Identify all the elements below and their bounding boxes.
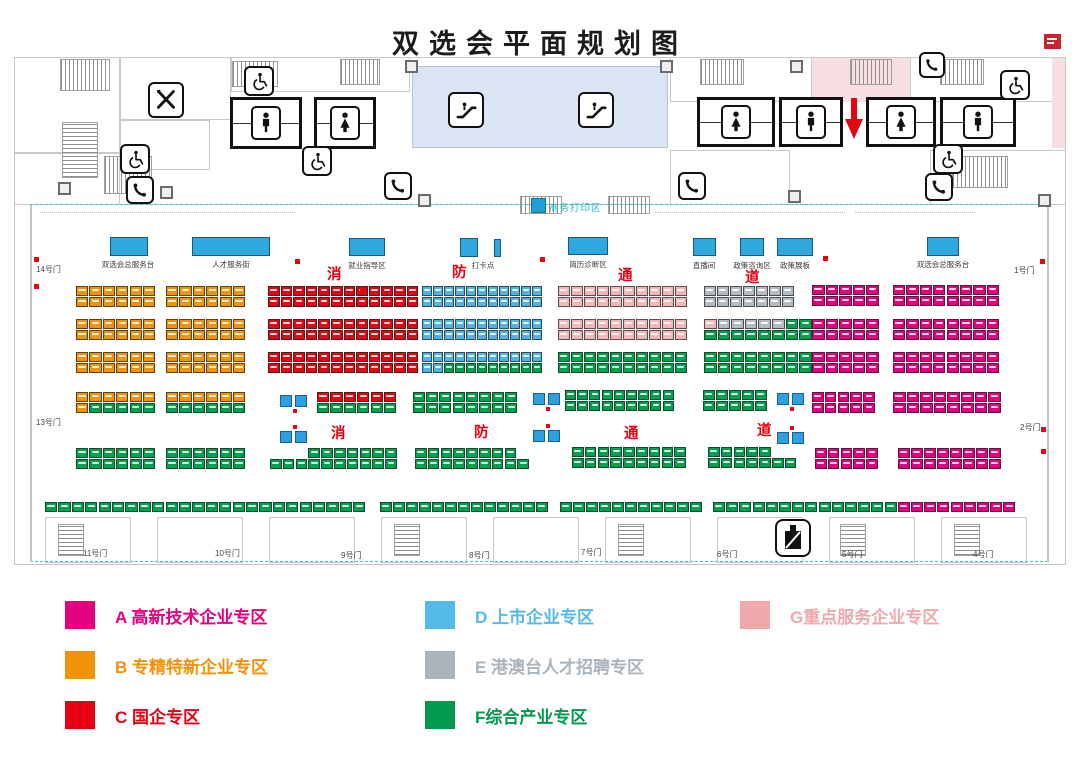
booth-cell-F bbox=[139, 502, 151, 512]
booth-cell-F bbox=[179, 502, 191, 512]
booth-cell-A bbox=[893, 363, 905, 373]
booth-cell-G bbox=[649, 286, 661, 296]
booth-cell-F bbox=[623, 447, 635, 457]
booth-cell-F bbox=[85, 502, 97, 512]
booth-cell-A bbox=[839, 363, 852, 373]
booth-cell-F bbox=[758, 363, 771, 373]
booth-cell-A bbox=[934, 392, 947, 402]
booth-cell-F bbox=[885, 502, 897, 512]
booth-cell-B bbox=[220, 330, 232, 340]
booth-cell-F bbox=[523, 502, 535, 512]
booth-cell-C bbox=[281, 297, 293, 307]
pillar bbox=[418, 194, 431, 207]
restroom-male bbox=[940, 97, 1016, 147]
booth-strip-F bbox=[565, 390, 675, 412]
booth-cell-F bbox=[745, 363, 758, 373]
gate-label: 4号门 bbox=[973, 549, 993, 560]
booth-cell-F bbox=[602, 390, 613, 400]
booth-cell-F bbox=[384, 403, 396, 413]
booth-cell-F bbox=[103, 459, 115, 469]
booth-strip-F bbox=[166, 448, 246, 470]
booth-cell-F bbox=[193, 403, 205, 413]
booth-cell-A bbox=[866, 352, 879, 362]
red-marker bbox=[790, 407, 794, 411]
booth-cell-F bbox=[499, 363, 509, 373]
booth-cell-A bbox=[850, 403, 862, 413]
red-marker bbox=[295, 259, 300, 264]
booth-cell-C bbox=[356, 319, 368, 329]
booth-cell-A bbox=[839, 285, 852, 295]
stair-hatch bbox=[850, 59, 892, 85]
booth-cell-D bbox=[488, 319, 498, 329]
booth-cell-B bbox=[103, 330, 115, 340]
booth-cell-G bbox=[662, 319, 674, 329]
booth-cell-G bbox=[571, 297, 583, 307]
booth-cell-F bbox=[739, 502, 751, 512]
kiosk-blue bbox=[280, 431, 292, 443]
booth-cell-F bbox=[152, 502, 164, 512]
escalator-icon bbox=[578, 92, 614, 128]
booth-cell-A bbox=[960, 363, 972, 373]
booth-cell-A bbox=[947, 392, 960, 402]
booth-cell-C bbox=[344, 363, 356, 373]
booth-cell-C bbox=[306, 330, 318, 340]
booth-cell-A bbox=[960, 352, 972, 362]
booth-cell-F bbox=[296, 459, 308, 469]
booth-cell-F bbox=[536, 502, 548, 512]
booth-cell-A bbox=[906, 352, 918, 362]
booth-cell-D bbox=[532, 319, 542, 329]
booth-cell-G bbox=[597, 297, 609, 307]
booth-cell-F bbox=[772, 330, 785, 340]
booth-cell-F bbox=[589, 401, 600, 411]
booth-cell-F bbox=[393, 502, 405, 512]
booth-cell-A bbox=[850, 392, 862, 402]
booth-cell-G bbox=[558, 330, 570, 340]
booth-cell-G bbox=[662, 297, 674, 307]
female-icon bbox=[721, 105, 751, 139]
booth-cell-F bbox=[466, 459, 478, 469]
pillar bbox=[58, 182, 71, 195]
booth-cell-F bbox=[505, 403, 517, 413]
booth-cell-B bbox=[89, 352, 101, 362]
restroom-male bbox=[779, 97, 843, 147]
booth-cell-C bbox=[407, 286, 419, 296]
red-marker bbox=[293, 409, 297, 413]
booth-cell-G bbox=[558, 297, 570, 307]
booth-cell-F bbox=[166, 448, 178, 458]
booth-cell-F bbox=[270, 459, 282, 469]
booth-cell-A bbox=[937, 502, 949, 512]
gate-label: 5号门 bbox=[842, 549, 862, 560]
booth-cell-F bbox=[786, 352, 799, 362]
booth-cell-F bbox=[130, 448, 142, 458]
booth-cell-A bbox=[947, 285, 959, 295]
booth-cell-C bbox=[318, 286, 330, 296]
booth-cell-A bbox=[812, 392, 824, 402]
booth-cell-A bbox=[906, 296, 918, 306]
booth-cell-C bbox=[331, 286, 343, 296]
booth-cell-A bbox=[853, 363, 866, 373]
booth-cell-C bbox=[331, 352, 343, 362]
booth-cell-B bbox=[179, 297, 191, 307]
fire-lane-char: 防 bbox=[474, 421, 489, 442]
booth-cell-F bbox=[745, 330, 758, 340]
booth-cell-A bbox=[853, 352, 866, 362]
booth-cell-B bbox=[179, 363, 191, 373]
service-desk bbox=[927, 237, 959, 256]
booth-cell-F bbox=[317, 403, 329, 413]
booth-cell-E bbox=[718, 319, 731, 329]
booth-cell-F bbox=[662, 447, 674, 457]
booth-cell-B bbox=[233, 352, 245, 362]
service-desk bbox=[693, 238, 716, 256]
booth-cell-B bbox=[166, 392, 178, 402]
booth-cell-B bbox=[220, 392, 232, 402]
booth-cell-F bbox=[45, 502, 57, 512]
booth-cell-C bbox=[281, 330, 293, 340]
booth-cell-G bbox=[675, 286, 687, 296]
booth-cell-A bbox=[911, 448, 923, 458]
restroom-female bbox=[314, 97, 376, 149]
booth-cell-D bbox=[433, 319, 443, 329]
booth-cell-F bbox=[649, 352, 661, 362]
booth-cell-B bbox=[116, 319, 128, 329]
booth-cell-B bbox=[220, 352, 232, 362]
red-marker bbox=[790, 426, 794, 430]
booth-cell-D bbox=[499, 286, 509, 296]
booth-cell-C bbox=[394, 286, 406, 296]
booth-cell-B bbox=[193, 297, 205, 307]
booth-cell-F bbox=[832, 502, 844, 512]
booth-cell-G bbox=[558, 319, 570, 329]
booth-cell-B bbox=[143, 297, 155, 307]
booth-cell-F bbox=[651, 502, 663, 512]
booth-strip-F bbox=[76, 448, 156, 470]
booth-cell-F bbox=[718, 330, 731, 340]
stair-hatch bbox=[60, 59, 110, 91]
booth-cell-G bbox=[584, 297, 596, 307]
booth-cell-B bbox=[193, 352, 205, 362]
booth-cell-A bbox=[839, 330, 852, 340]
booth-cell-G bbox=[584, 330, 596, 340]
red-marker bbox=[546, 407, 550, 411]
booth-cell-A bbox=[812, 363, 825, 373]
booth-cell-G bbox=[571, 330, 583, 340]
booth-cell-A bbox=[987, 352, 999, 362]
booth-cell-B bbox=[130, 352, 142, 362]
booth-cell-G bbox=[571, 286, 583, 296]
booth-cell-A bbox=[973, 330, 985, 340]
booth-cell-A bbox=[893, 319, 905, 329]
booth-cell-F bbox=[610, 458, 622, 468]
booth-cell-F bbox=[99, 502, 111, 512]
booth-cell-F bbox=[623, 458, 635, 468]
booth-cell-F bbox=[772, 363, 785, 373]
wall-line bbox=[30, 205, 32, 562]
booth-cell-E bbox=[782, 286, 794, 296]
booth-cell-G bbox=[610, 297, 622, 307]
booth-strip-G bbox=[558, 286, 688, 308]
booth-cell-D bbox=[499, 330, 509, 340]
booth-strip-mixed bbox=[415, 448, 530, 470]
booth-cell-F bbox=[558, 363, 570, 373]
booth-cell-F bbox=[143, 448, 155, 458]
booth-cell-A bbox=[826, 352, 839, 362]
booth-cell-C bbox=[356, 363, 368, 373]
booth-cell-A bbox=[987, 330, 999, 340]
booth-cell-F bbox=[273, 502, 285, 512]
booth-cell-F bbox=[413, 392, 425, 402]
booth-cell-A bbox=[828, 448, 840, 458]
booth-cell-B bbox=[76, 330, 88, 340]
booth-cell-F bbox=[357, 403, 369, 413]
service-desk-label: 简历诊断区 bbox=[569, 259, 607, 270]
booth-cell-B bbox=[116, 286, 128, 296]
booth-cell-D bbox=[521, 352, 531, 362]
booth-cell-F bbox=[479, 448, 491, 458]
booth-cell-F bbox=[233, 403, 245, 413]
booth-cell-A bbox=[933, 319, 945, 329]
booth-cell-A bbox=[947, 296, 959, 306]
booth-cell-F bbox=[441, 448, 453, 458]
booth-cell-A bbox=[960, 285, 972, 295]
booth-cell-A bbox=[839, 319, 852, 329]
booth-cell-A bbox=[812, 330, 825, 340]
booth-cell-G bbox=[649, 297, 661, 307]
booth-cell-A bbox=[893, 330, 905, 340]
booth-cell-C bbox=[381, 330, 393, 340]
booth-cell-C bbox=[306, 363, 318, 373]
booth-cell-D bbox=[422, 330, 432, 340]
booth-cell-A bbox=[825, 392, 837, 402]
booth-cell-A bbox=[934, 403, 947, 413]
booth-cell-F bbox=[786, 319, 799, 329]
booth-cell-C bbox=[293, 286, 305, 296]
booth-cell-F bbox=[731, 330, 744, 340]
booth-cell-F bbox=[521, 363, 531, 373]
booth-cell-F bbox=[598, 447, 610, 457]
booth-cell-F bbox=[206, 502, 218, 512]
booth-cell-F bbox=[372, 448, 384, 458]
booth-cell-B bbox=[233, 363, 245, 373]
booth-cell-F bbox=[858, 502, 870, 512]
booth-cell-A bbox=[853, 319, 866, 329]
booth-cell-F bbox=[321, 459, 333, 469]
restaurant-icon bbox=[148, 82, 184, 118]
watermark-glyph bbox=[1047, 38, 1057, 40]
booth-cell-A bbox=[866, 330, 879, 340]
booth-cell-A bbox=[961, 392, 974, 402]
booth-cell-C bbox=[306, 286, 318, 296]
booth-cell-F bbox=[597, 363, 609, 373]
booth-cell-B bbox=[233, 392, 245, 402]
booth-cell-E bbox=[731, 319, 744, 329]
booth-cell-F bbox=[360, 459, 372, 469]
booth-cell-B bbox=[206, 286, 218, 296]
red-marker bbox=[540, 257, 545, 262]
booth-cell-B bbox=[193, 392, 205, 402]
booth-cell-D bbox=[466, 352, 476, 362]
booth-cell-A bbox=[987, 296, 999, 306]
booth-cell-E bbox=[769, 297, 781, 307]
booth-cell-B bbox=[220, 319, 232, 329]
booth-cell-B bbox=[143, 352, 155, 362]
booth-cell-F bbox=[143, 403, 155, 413]
phone-icon bbox=[678, 172, 706, 200]
booth-cell-C bbox=[268, 352, 280, 362]
booth-cell-A bbox=[812, 403, 824, 413]
kiosk-blue bbox=[533, 393, 545, 405]
booth-cell-F bbox=[206, 403, 218, 413]
booth-cell-G bbox=[597, 319, 609, 329]
wheelchair-icon bbox=[933, 144, 963, 174]
booth-cell-A bbox=[866, 319, 879, 329]
booth-cell-F bbox=[445, 502, 457, 512]
booth-cell-A bbox=[826, 296, 839, 306]
booth-cell-F bbox=[179, 448, 191, 458]
booth-cell-B bbox=[206, 319, 218, 329]
service-desk-label: 直播间 bbox=[693, 260, 716, 271]
red-marker bbox=[546, 424, 550, 428]
booth-cell-E bbox=[704, 297, 716, 307]
booth-cell-F bbox=[758, 330, 771, 340]
booth-cell-G bbox=[597, 330, 609, 340]
kiosk-blue bbox=[295, 431, 307, 443]
booth-cell-A bbox=[933, 285, 945, 295]
wall-line bbox=[1065, 57, 1066, 565]
booth-cell-F bbox=[766, 502, 778, 512]
booth-cell-F bbox=[166, 403, 178, 413]
booth-cell-B bbox=[206, 363, 218, 373]
booth-cell-G bbox=[662, 330, 674, 340]
booth-cell-F bbox=[871, 502, 883, 512]
booth-cell-F bbox=[721, 447, 733, 457]
booth-strip-B bbox=[76, 352, 156, 374]
booth-cell-C bbox=[344, 392, 356, 402]
booth-cell-G bbox=[636, 297, 648, 307]
service-desk bbox=[349, 238, 385, 256]
booth-strip-F bbox=[704, 352, 813, 374]
wall-line bbox=[14, 564, 1066, 565]
booth-cell-D bbox=[521, 286, 531, 296]
booth-cell-F bbox=[703, 390, 715, 400]
booth-cell-A bbox=[893, 296, 905, 306]
fire-lane-char: 通 bbox=[618, 264, 633, 285]
booth-cell-A bbox=[839, 352, 852, 362]
booth-cell-C bbox=[407, 352, 419, 362]
booth-cell-F bbox=[565, 401, 576, 411]
booth-cell-F bbox=[76, 459, 88, 469]
booth-cell-F bbox=[734, 458, 746, 468]
booth-cell-D bbox=[466, 297, 476, 307]
booth-cell-D bbox=[477, 319, 487, 329]
red-marker bbox=[34, 284, 39, 289]
booth-cell-A bbox=[812, 319, 825, 329]
restroom-female bbox=[866, 97, 936, 147]
booth-cell-F bbox=[340, 502, 352, 512]
booth-cell-F bbox=[89, 459, 101, 469]
booth-cell-F bbox=[742, 390, 754, 400]
booth-cell-F bbox=[532, 363, 542, 373]
booth-cell-C bbox=[281, 319, 293, 329]
booth-cell-B bbox=[89, 319, 101, 329]
booth-cell-F bbox=[638, 401, 649, 411]
booth-strip-A bbox=[812, 285, 880, 307]
booth-strip-A bbox=[893, 319, 1000, 341]
booth-cell-F bbox=[703, 401, 715, 411]
booth-cell-F bbox=[772, 352, 785, 362]
booth-cell-F bbox=[731, 352, 744, 362]
booth-cell-D bbox=[422, 297, 432, 307]
booth-cell-C bbox=[318, 297, 330, 307]
booth-cell-B bbox=[143, 330, 155, 340]
gate-label: 9号门 bbox=[341, 550, 361, 561]
booth-cell-F bbox=[415, 459, 427, 469]
booth-cell-F bbox=[845, 502, 857, 512]
booth-cell-D bbox=[455, 352, 465, 362]
female-icon bbox=[886, 105, 916, 139]
booth-cell-C bbox=[356, 352, 368, 362]
booth-strip-A bbox=[893, 352, 1000, 374]
booth-cell-C bbox=[369, 297, 381, 307]
booth-cell-F bbox=[819, 502, 831, 512]
booth-cell-G bbox=[675, 330, 687, 340]
booth-strip-C bbox=[268, 352, 419, 374]
booth-cell-B bbox=[89, 330, 101, 340]
booth-cell-B bbox=[233, 319, 245, 329]
booth-cell-F bbox=[219, 502, 231, 512]
booth-cell-F bbox=[677, 502, 689, 512]
booth-strip-E bbox=[704, 286, 795, 308]
booth-cell-B bbox=[103, 286, 115, 296]
booth-cell-F bbox=[58, 502, 70, 512]
booth-cell-F bbox=[675, 363, 687, 373]
booth-cell-A bbox=[920, 330, 932, 340]
booth-cell-F bbox=[453, 448, 465, 458]
booth-cell-F bbox=[72, 502, 84, 512]
booth-cell-B bbox=[76, 363, 88, 373]
booth-cell-A bbox=[961, 403, 974, 413]
booth-cell-F bbox=[589, 390, 600, 400]
booth-cell-D bbox=[422, 352, 432, 362]
booth-cell-F bbox=[444, 363, 454, 373]
booth-cell-C bbox=[318, 363, 330, 373]
booth-cell-C bbox=[407, 330, 419, 340]
booth-strip-mixed bbox=[713, 502, 1017, 513]
booth-cell-A bbox=[924, 502, 936, 512]
booth-strip-D bbox=[422, 286, 543, 308]
booth-cell-F bbox=[573, 502, 585, 512]
booth-cell-F bbox=[745, 352, 758, 362]
booth-cell-A bbox=[950, 448, 962, 458]
booth-cell-B bbox=[193, 363, 205, 373]
booth-cell-D bbox=[444, 319, 454, 329]
booth-cell-F bbox=[259, 502, 271, 512]
booth-cell-D bbox=[444, 352, 454, 362]
booth-cell-B bbox=[193, 330, 205, 340]
booth-cell-F bbox=[419, 502, 431, 512]
booth-cell-A bbox=[853, 448, 865, 458]
fire-lane-char: 消 bbox=[331, 422, 346, 443]
booth-cell-A bbox=[812, 352, 825, 362]
booth-cell-B bbox=[166, 297, 178, 307]
male-icon bbox=[796, 105, 826, 139]
booth-cell-F bbox=[330, 403, 342, 413]
booth-cell-B bbox=[179, 352, 191, 362]
kiosk-blue bbox=[777, 393, 789, 405]
booth-cell-F bbox=[614, 390, 625, 400]
